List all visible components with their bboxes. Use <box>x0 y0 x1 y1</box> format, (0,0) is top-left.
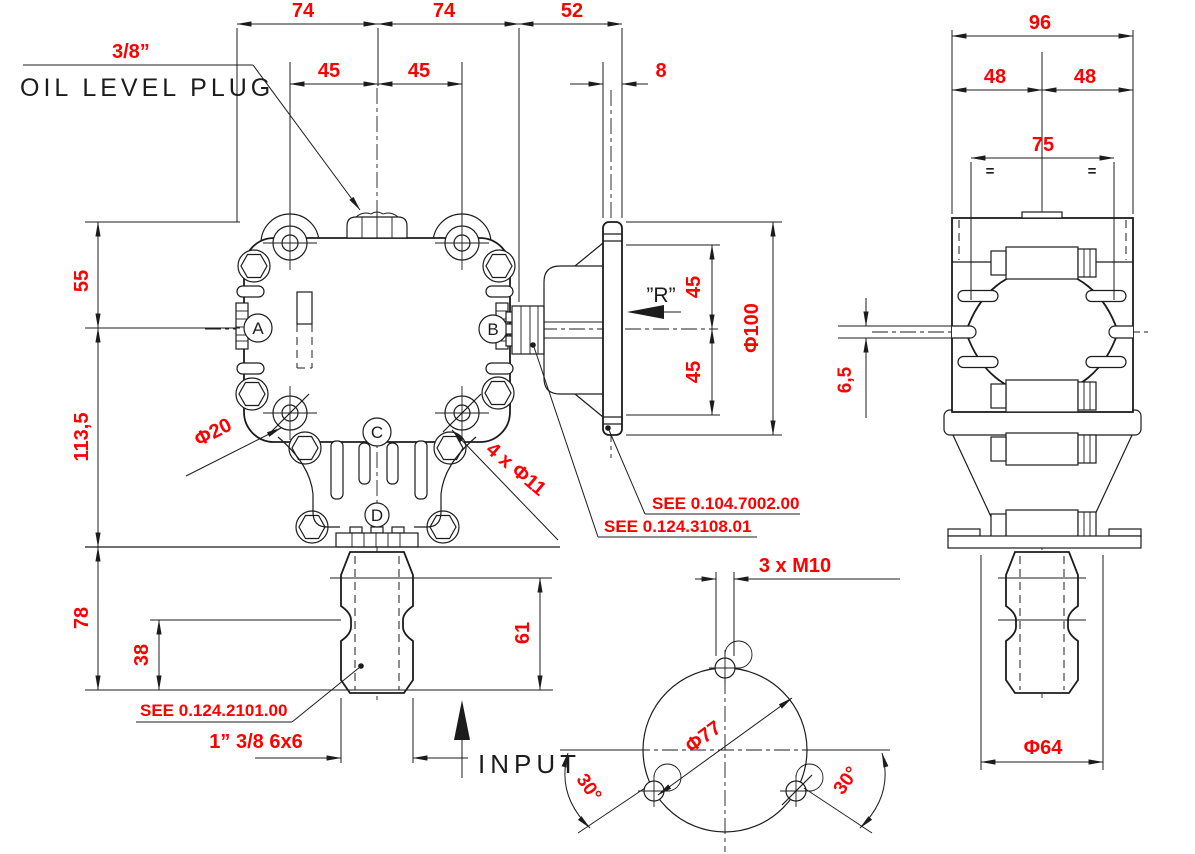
dim-113-5: 113,5 <box>71 413 93 462</box>
hex-bolt <box>289 432 321 464</box>
hex-bolt <box>482 377 514 409</box>
bottom-view <box>638 641 823 832</box>
dim-96: 96 <box>1029 12 1051 34</box>
r-direction-mark: ”R” <box>627 284 681 319</box>
oil-plug-callout: 3/8” OIL LEVEL PLUG <box>20 41 360 210</box>
r-mark-label: ”R” <box>646 284 675 307</box>
dim-74-right: 74 <box>433 0 456 22</box>
see-2101-label: SEE 0.124.2101.00 <box>140 701 287 720</box>
dim-spline: 1” 3/8 6x6 <box>209 731 302 753</box>
side-bolt <box>991 380 1096 412</box>
m10-hole <box>709 641 752 684</box>
dim-75: 75 <box>1032 134 1054 156</box>
dim-8: 8 <box>655 60 666 82</box>
port-b-label: B <box>487 320 498 339</box>
dim-48-right: 48 <box>1074 66 1096 88</box>
sight-glass <box>297 292 312 324</box>
port-d-label: D <box>371 506 383 525</box>
dim-6-5: 6,5 <box>835 366 856 393</box>
dim-78: 78 <box>71 607 93 629</box>
m10-hole <box>638 764 681 807</box>
dim-38: 38 <box>131 644 153 666</box>
side-bolt <box>991 247 1096 279</box>
input-direction: INPUT <box>454 700 581 779</box>
dim-phi64: Φ64 <box>1024 737 1064 759</box>
dim-45-left: 45 <box>318 60 340 82</box>
side-view <box>944 212 1141 693</box>
dim-phi20: Φ20 <box>191 414 235 451</box>
see-7002-note: SEE 0.104.7002.00 <box>605 425 800 514</box>
port-c-label: C <box>371 423 383 442</box>
equal-mark-right: = <box>1088 163 1097 180</box>
dim-30-right: 30° <box>830 763 864 799</box>
output-flange <box>506 222 622 435</box>
dim-61: 61 <box>512 622 534 644</box>
see-2101-note: SEE 0.124.2101.00 <box>136 663 364 722</box>
dim-phi100: Φ100 <box>741 303 763 353</box>
side-bolt <box>991 433 1096 465</box>
oil-level-plug <box>347 212 407 238</box>
hex-bolt <box>238 250 270 282</box>
technical-drawing: A B C D <box>0 0 1195 854</box>
dim-45-right: 45 <box>408 60 430 82</box>
input-shaft-front <box>341 552 413 693</box>
dim-74-left: 74 <box>292 0 315 22</box>
hex-bolt <box>434 432 466 464</box>
dim-48-left: 48 <box>984 66 1006 88</box>
see-7002-label: SEE 0.104.7002.00 <box>652 494 799 513</box>
port-a-label: A <box>252 319 264 338</box>
input-arrow-icon <box>454 700 470 740</box>
see-notes: SEE 0.104.7002.00 SEE 0.124.3108.01 <box>530 342 800 537</box>
plug-label: OIL LEVEL PLUG <box>20 74 274 102</box>
hex-bolt <box>483 250 515 282</box>
hex-bolt <box>236 378 268 410</box>
input-shaft-side <box>998 552 1086 693</box>
dim-4x-phi11: 4 x Φ11 <box>482 438 550 500</box>
dimensions-flange: 45 45 Φ100 ”R” <box>626 222 782 435</box>
front-view: A B C D <box>236 212 622 693</box>
dim-45-lower: 45 <box>683 361 705 383</box>
equal-mark-left: = <box>986 163 995 180</box>
dim-55: 55 <box>71 270 93 292</box>
drawing-canvas: A B C D <box>0 0 1195 854</box>
dimensions-bottom: 3 x M10 Φ77 30° 30° <box>560 555 900 833</box>
see-3108-label: SEE 0.124.3108.01 <box>604 517 751 536</box>
plug-size-label: 3/8” <box>112 41 150 63</box>
dim-52: 52 <box>561 0 583 22</box>
dim-3xm10: 3 x M10 <box>759 555 831 577</box>
dim-45-upper: 45 <box>683 276 705 298</box>
